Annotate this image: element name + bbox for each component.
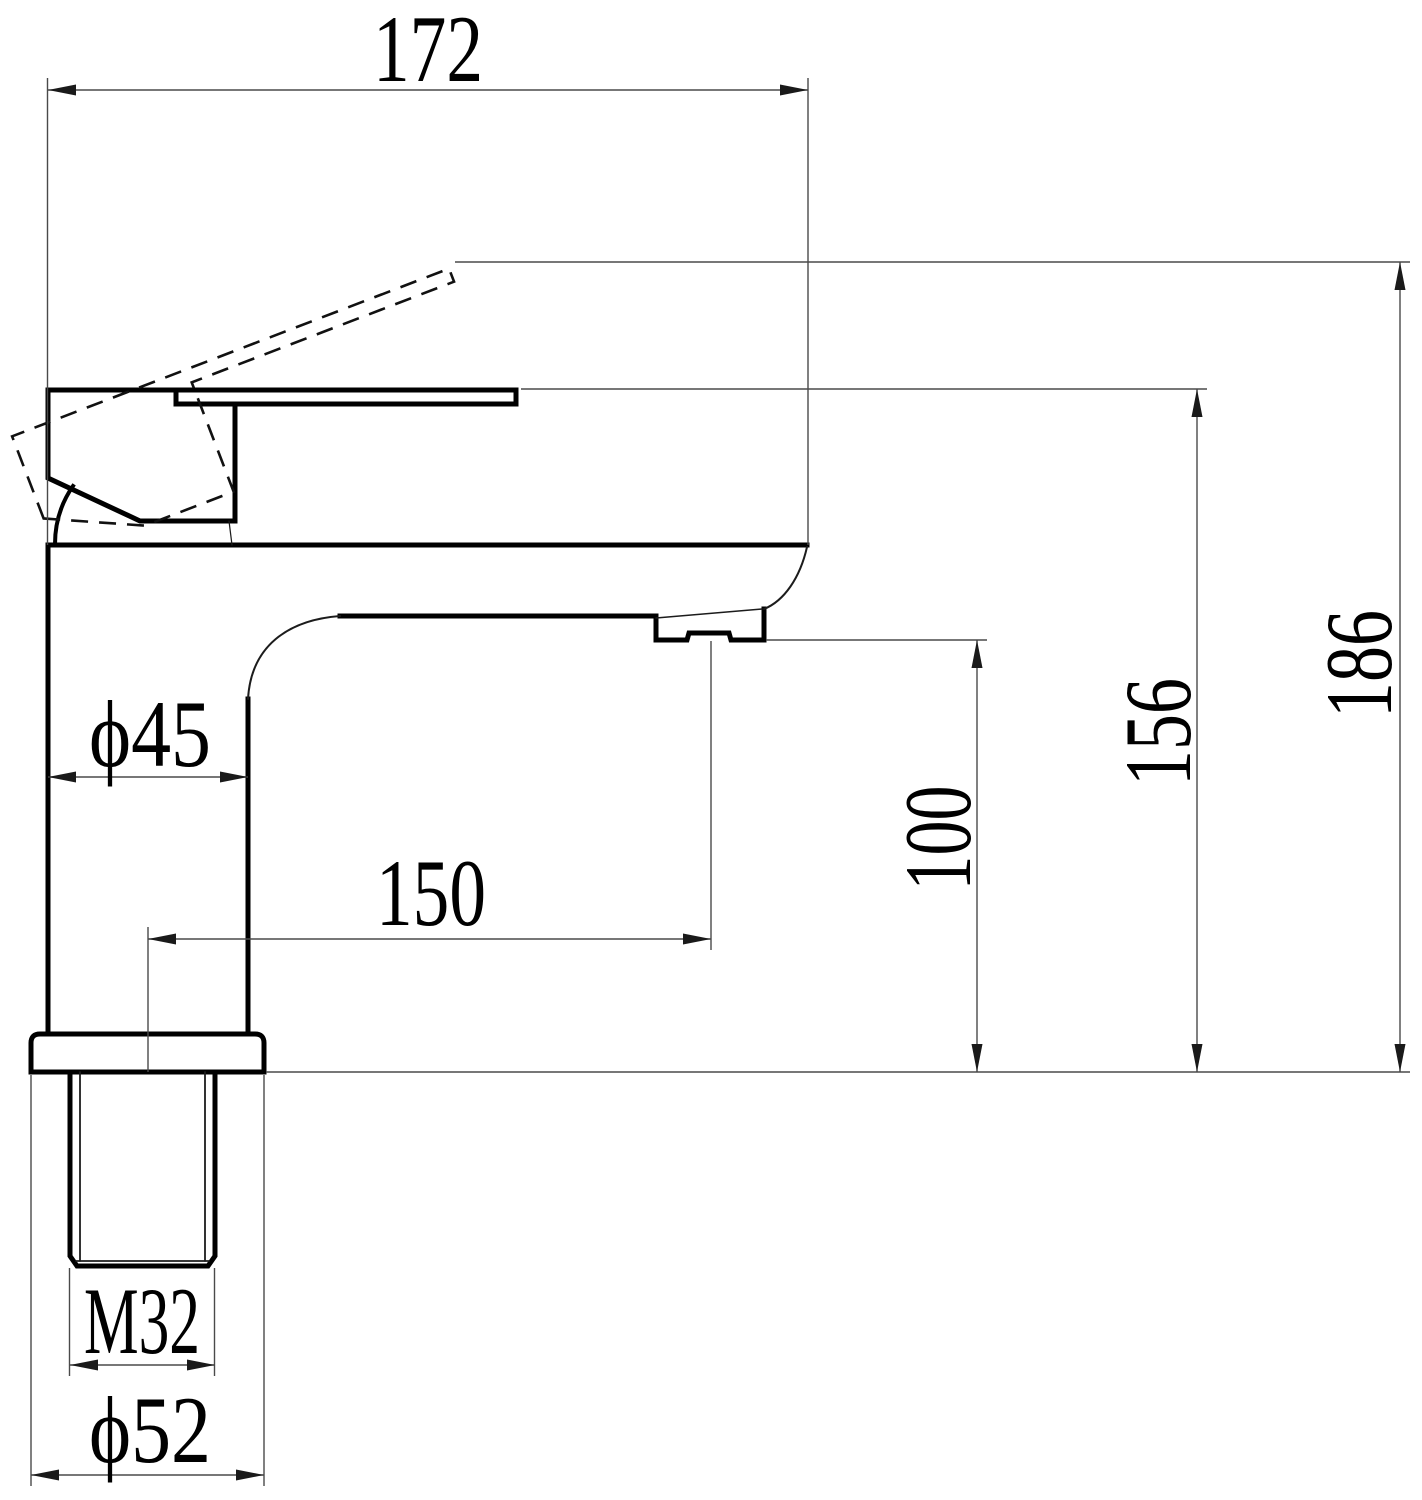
dim-label-body-diameter: ϕ45 <box>89 681 211 787</box>
arrow-186-top <box>1395 262 1406 290</box>
faucet-technical-drawing: 172 ϕ45 150 100 156 186 M32 ϕ52 <box>0 0 1422 1500</box>
dimension-labels: 172 ϕ45 150 100 156 186 M32 ϕ52 <box>84 0 1412 1483</box>
arrow-172-left <box>48 85 76 96</box>
handle-raised-outline <box>12 269 496 559</box>
dim-label-body-top-height: 156 <box>1105 678 1211 786</box>
handle-housing-outline <box>48 390 516 521</box>
arrow-186-bottom <box>1395 1044 1406 1072</box>
faucet-outline <box>31 390 807 1266</box>
thread-stem-outline <box>70 1072 215 1266</box>
arrow-100-top <box>972 640 983 668</box>
dim-label-base-diameter: ϕ52 <box>89 1377 211 1483</box>
spout-rear-curve <box>248 616 340 699</box>
arrow-150-right <box>683 934 711 945</box>
dim-label-spout-outlet-height: 100 <box>885 786 991 891</box>
arrow-156-top <box>1192 389 1203 417</box>
arrow-phi52-right <box>236 1470 264 1481</box>
arrow-150-left <box>148 934 176 945</box>
handle-pivot-arc <box>55 486 73 544</box>
dim-label-total-height: 186 <box>1306 610 1412 718</box>
dim-label-spout-reach: 150 <box>376 840 486 946</box>
handle-raised-dashed <box>12 269 496 559</box>
housing-deck-connector <box>229 521 232 545</box>
arrow-phi45-right <box>220 772 248 783</box>
dim-label-top-width: 172 <box>373 0 483 102</box>
aerator-top-line <box>656 609 762 618</box>
arrow-phi45-left <box>48 772 76 783</box>
arrow-172-right <box>780 85 808 96</box>
lever-underside-line <box>176 392 235 404</box>
dim-label-thread-size: M32 <box>84 1268 200 1374</box>
arrow-phi52-left <box>31 1470 59 1481</box>
spout-front-curve <box>764 547 807 609</box>
arrow-156-bottom <box>1192 1044 1203 1072</box>
arrow-100-bottom <box>972 1044 983 1072</box>
drawing-canvas: 172 ϕ45 150 100 156 186 M32 ϕ52 <box>0 0 1422 1500</box>
